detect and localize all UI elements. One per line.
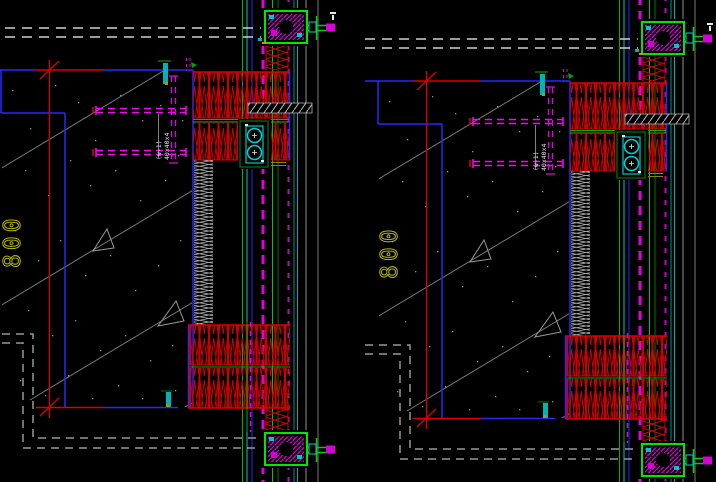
cad-drawing-area[interactable]: 800: [0, 0, 716, 482]
cad-canvas: 800: [0, 0, 716, 482]
